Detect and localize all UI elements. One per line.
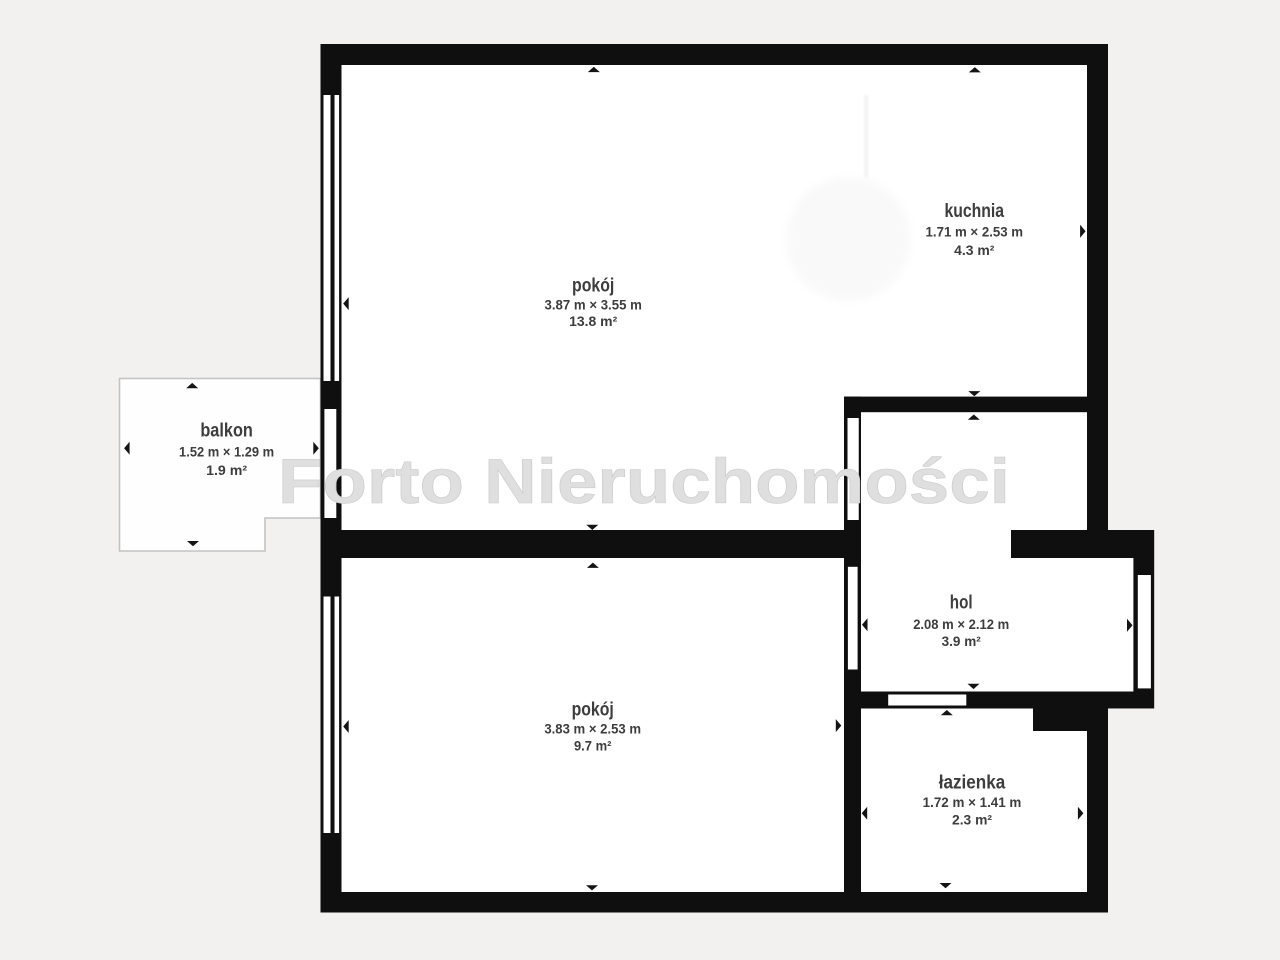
- svg-text:pokój: pokój: [572, 275, 614, 296]
- svg-text:2.08 m × 2.12 m: 2.08 m × 2.12 m: [913, 616, 1009, 632]
- svg-text:2.3 m²: 2.3 m²: [952, 812, 992, 828]
- svg-text:4.3 m²: 4.3 m²: [954, 242, 995, 258]
- svg-text:łazienka: łazienka: [939, 772, 1006, 793]
- svg-text:1.52 m × 1.29 m: 1.52 m × 1.29 m: [179, 444, 274, 460]
- svg-text:1.72 m × 1.41 m: 1.72 m × 1.41 m: [923, 794, 1022, 810]
- svg-text:pokój: pokój: [572, 700, 614, 721]
- svg-text:1.71 m × 2.53 m: 1.71 m × 2.53 m: [926, 224, 1024, 240]
- svg-text:kuchnia: kuchnia: [945, 201, 1005, 222]
- svg-text:1.9 m²: 1.9 m²: [206, 462, 247, 478]
- svg-text:3.9 m²: 3.9 m²: [942, 633, 981, 649]
- svg-text:13.8 m²: 13.8 m²: [569, 313, 617, 329]
- svg-text:hol: hol: [950, 592, 973, 613]
- svg-text:balkon: balkon: [200, 421, 253, 442]
- svg-text:Forto Nieruchomości: Forto Nieruchomości: [278, 447, 1010, 517]
- svg-text:3.87 m × 3.55 m: 3.87 m × 3.55 m: [545, 297, 642, 313]
- svg-text:3.83 m × 2.53 m: 3.83 m × 2.53 m: [544, 720, 641, 736]
- svg-text:9.7 m²: 9.7 m²: [574, 737, 612, 753]
